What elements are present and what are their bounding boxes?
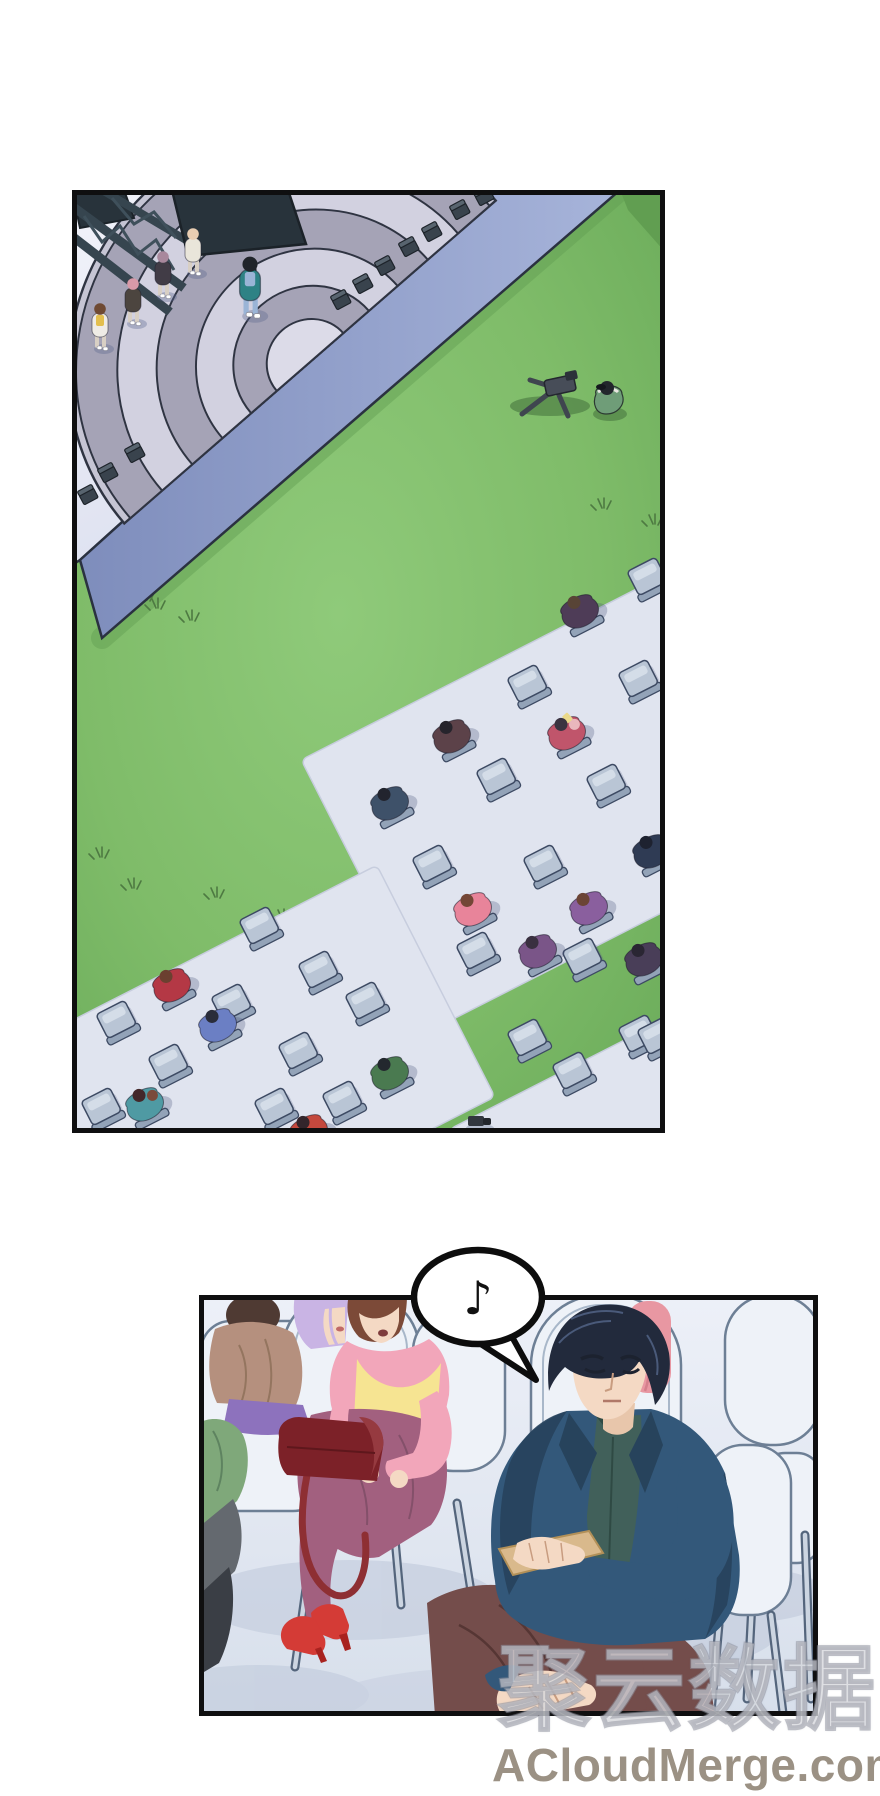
- music-note: ♪: [463, 1271, 492, 1325]
- aerial-scene: [72, 190, 665, 1133]
- aerial-event-panel: [72, 190, 665, 1133]
- watermark-url: ACloudMerge.com: [492, 1738, 880, 1792]
- speech-bubble: ♪: [400, 1238, 580, 1388]
- comic-page: ♪ 聚云数据 ACloudMerge.com: [0, 0, 880, 1796]
- watermark-chinese: 聚云数据: [498, 1642, 880, 1739]
